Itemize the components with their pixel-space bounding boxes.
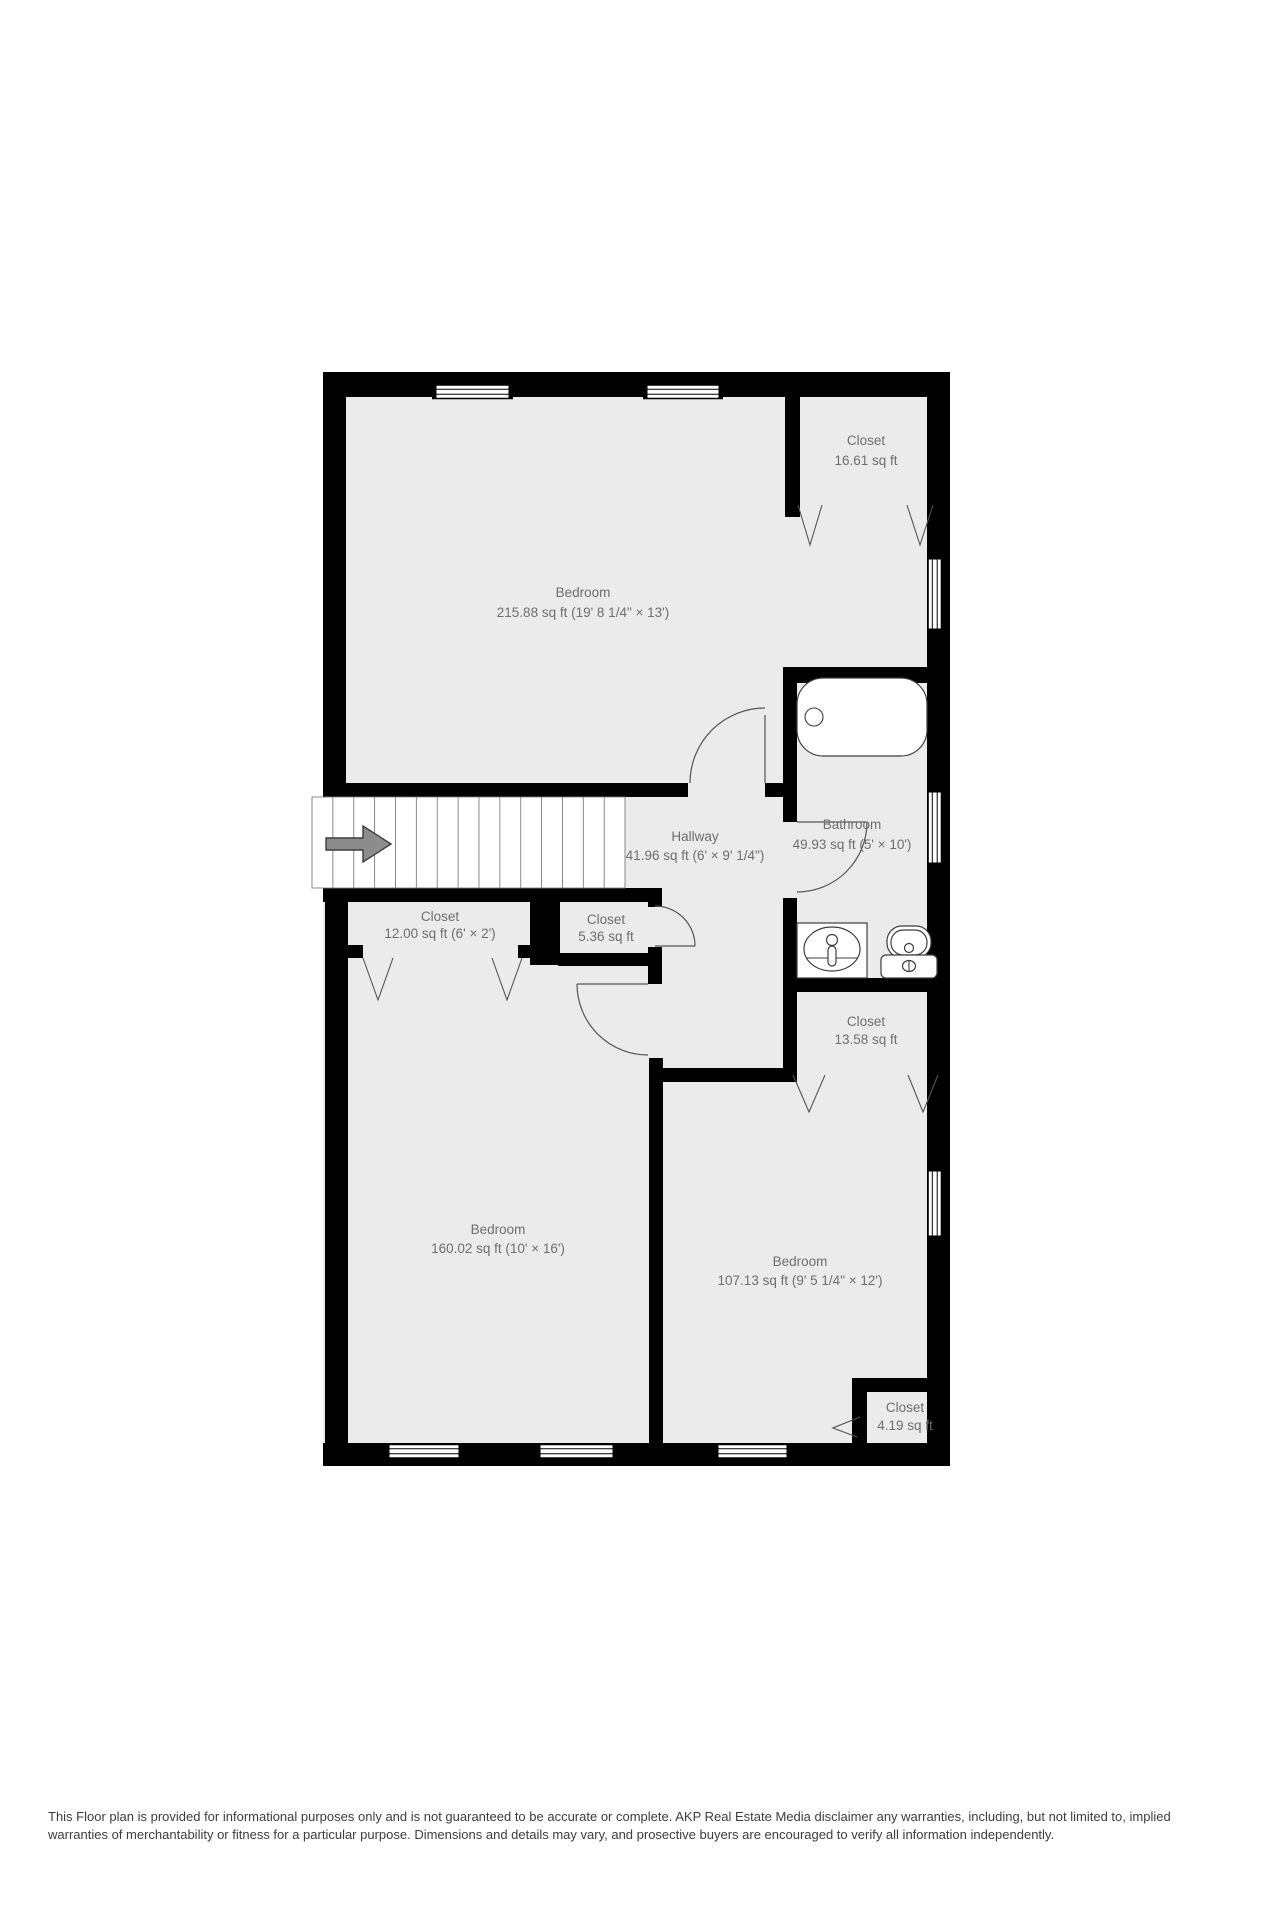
toilet-icon xyxy=(881,926,937,978)
room-label-bathroom: Bathroom xyxy=(823,817,882,832)
room-dims-closet-top: 16.61 sq ft xyxy=(834,453,897,468)
window xyxy=(536,1445,617,1459)
room-label-bedroom-left: Bedroom xyxy=(471,1222,526,1237)
window xyxy=(432,385,513,399)
window xyxy=(928,1167,942,1240)
room-label-closet-small: Closet xyxy=(587,912,626,927)
room-label-hallway: Hallway xyxy=(671,829,719,844)
window xyxy=(714,1445,791,1459)
room-dims-bathroom: 49.93 sq ft (5' × 10') xyxy=(793,837,912,852)
window xyxy=(928,555,942,633)
window xyxy=(385,1445,463,1459)
room-label-closet-mid: Closet xyxy=(847,1014,886,1029)
room-dims-bedroom-right: 107.13 sq ft (9' 5 1/4" × 12') xyxy=(718,1273,883,1288)
room-dims-closet-tiny: 4.19 sq ft xyxy=(877,1418,933,1433)
floor-area xyxy=(323,372,950,1466)
bathtub-icon xyxy=(797,678,927,756)
staircase xyxy=(312,797,625,888)
disclaimer-line-1: This Floor plan is provided for informat… xyxy=(48,1808,1238,1826)
room-label-closet-top: Closet xyxy=(847,433,886,448)
disclaimer-line-2: warranties of merchantability or fitness… xyxy=(48,1826,1238,1844)
room-label-closet-tiny: Closet xyxy=(886,1400,925,1415)
room-dims-closet-small: 5.36 sq ft xyxy=(578,929,634,944)
room-label-closet-hall: Closet xyxy=(421,909,460,924)
sink-icon xyxy=(797,923,867,978)
room-dims-bedroom-top: 215.88 sq ft (19' 8 1/4" × 13') xyxy=(497,605,669,620)
disclaimer-text: This Floor plan is provided for informat… xyxy=(48,1808,1238,1844)
room-label-bedroom-right: Bedroom xyxy=(773,1254,828,1269)
window xyxy=(928,788,942,867)
window xyxy=(643,385,723,399)
room-dims-bedroom-left: 160.02 sq ft (10' × 16') xyxy=(431,1241,565,1256)
room-dims-closet-hall: 12.00 sq ft (6' × 2') xyxy=(384,926,495,941)
floor-plan-page: Bedroom 215.88 sq ft (19' 8 1/4" × 13') … xyxy=(0,0,1280,1920)
floor-plan-svg: Bedroom 215.88 sq ft (19' 8 1/4" × 13') … xyxy=(0,0,1280,1920)
room-dims-closet-mid: 13.58 sq ft xyxy=(834,1032,897,1047)
room-dims-hallway: 41.96 sq ft (6' × 9' 1/4") xyxy=(626,848,765,863)
room-label-bedroom-top: Bedroom xyxy=(556,585,611,600)
